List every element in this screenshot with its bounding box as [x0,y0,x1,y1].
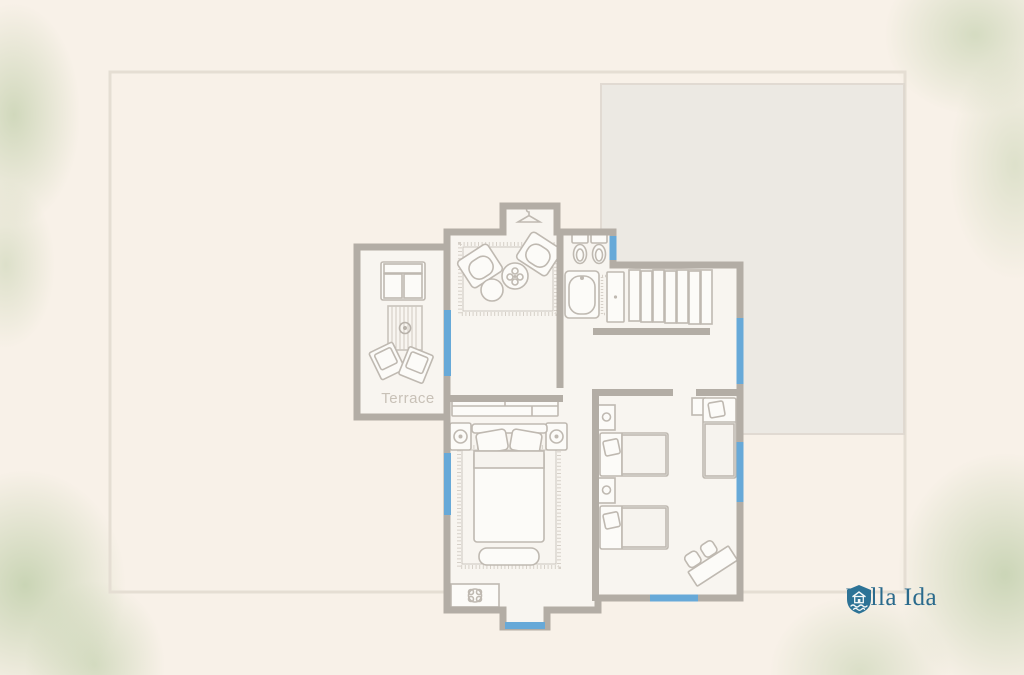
nightstand-icon [450,423,471,450]
toilet-icon [591,234,607,264]
interior-wall [592,389,599,601]
nightstand-icon [598,478,615,503]
sofa-icon [381,262,425,300]
plant-table-icon [502,263,528,289]
window-marker [650,595,698,602]
shield-house-icon [846,584,872,614]
interior-wall [696,389,740,396]
floor-plan [0,0,1024,675]
round-table-icon [481,279,503,301]
window-marker [737,442,744,502]
bench-icon [452,401,558,416]
single-bed-icon [703,398,736,478]
single-bed-icon [600,433,668,476]
brand-logo: Villa Ida [846,584,937,612]
nightstand-icon [546,423,567,450]
window-marker [444,453,451,515]
bathtub-icon [565,271,599,318]
cabinet-icon [607,272,624,322]
entrance-door-marker [505,622,545,629]
window-marker [737,318,744,384]
single-bed-icon [600,506,668,549]
scene: Terrace Villa Ida [0,0,1024,675]
interior-wall [557,232,564,388]
window-marker [610,236,617,260]
wardrobe-icon [629,268,712,324]
nightstand-icon [598,405,615,430]
interior-wall [447,395,563,402]
terrace-label: Terrace [368,390,448,407]
window-marker [444,310,451,376]
interior-wall [593,328,710,335]
flower-planter-icon [451,584,499,607]
interior-wall [593,389,673,396]
toilet-icon [572,234,588,264]
